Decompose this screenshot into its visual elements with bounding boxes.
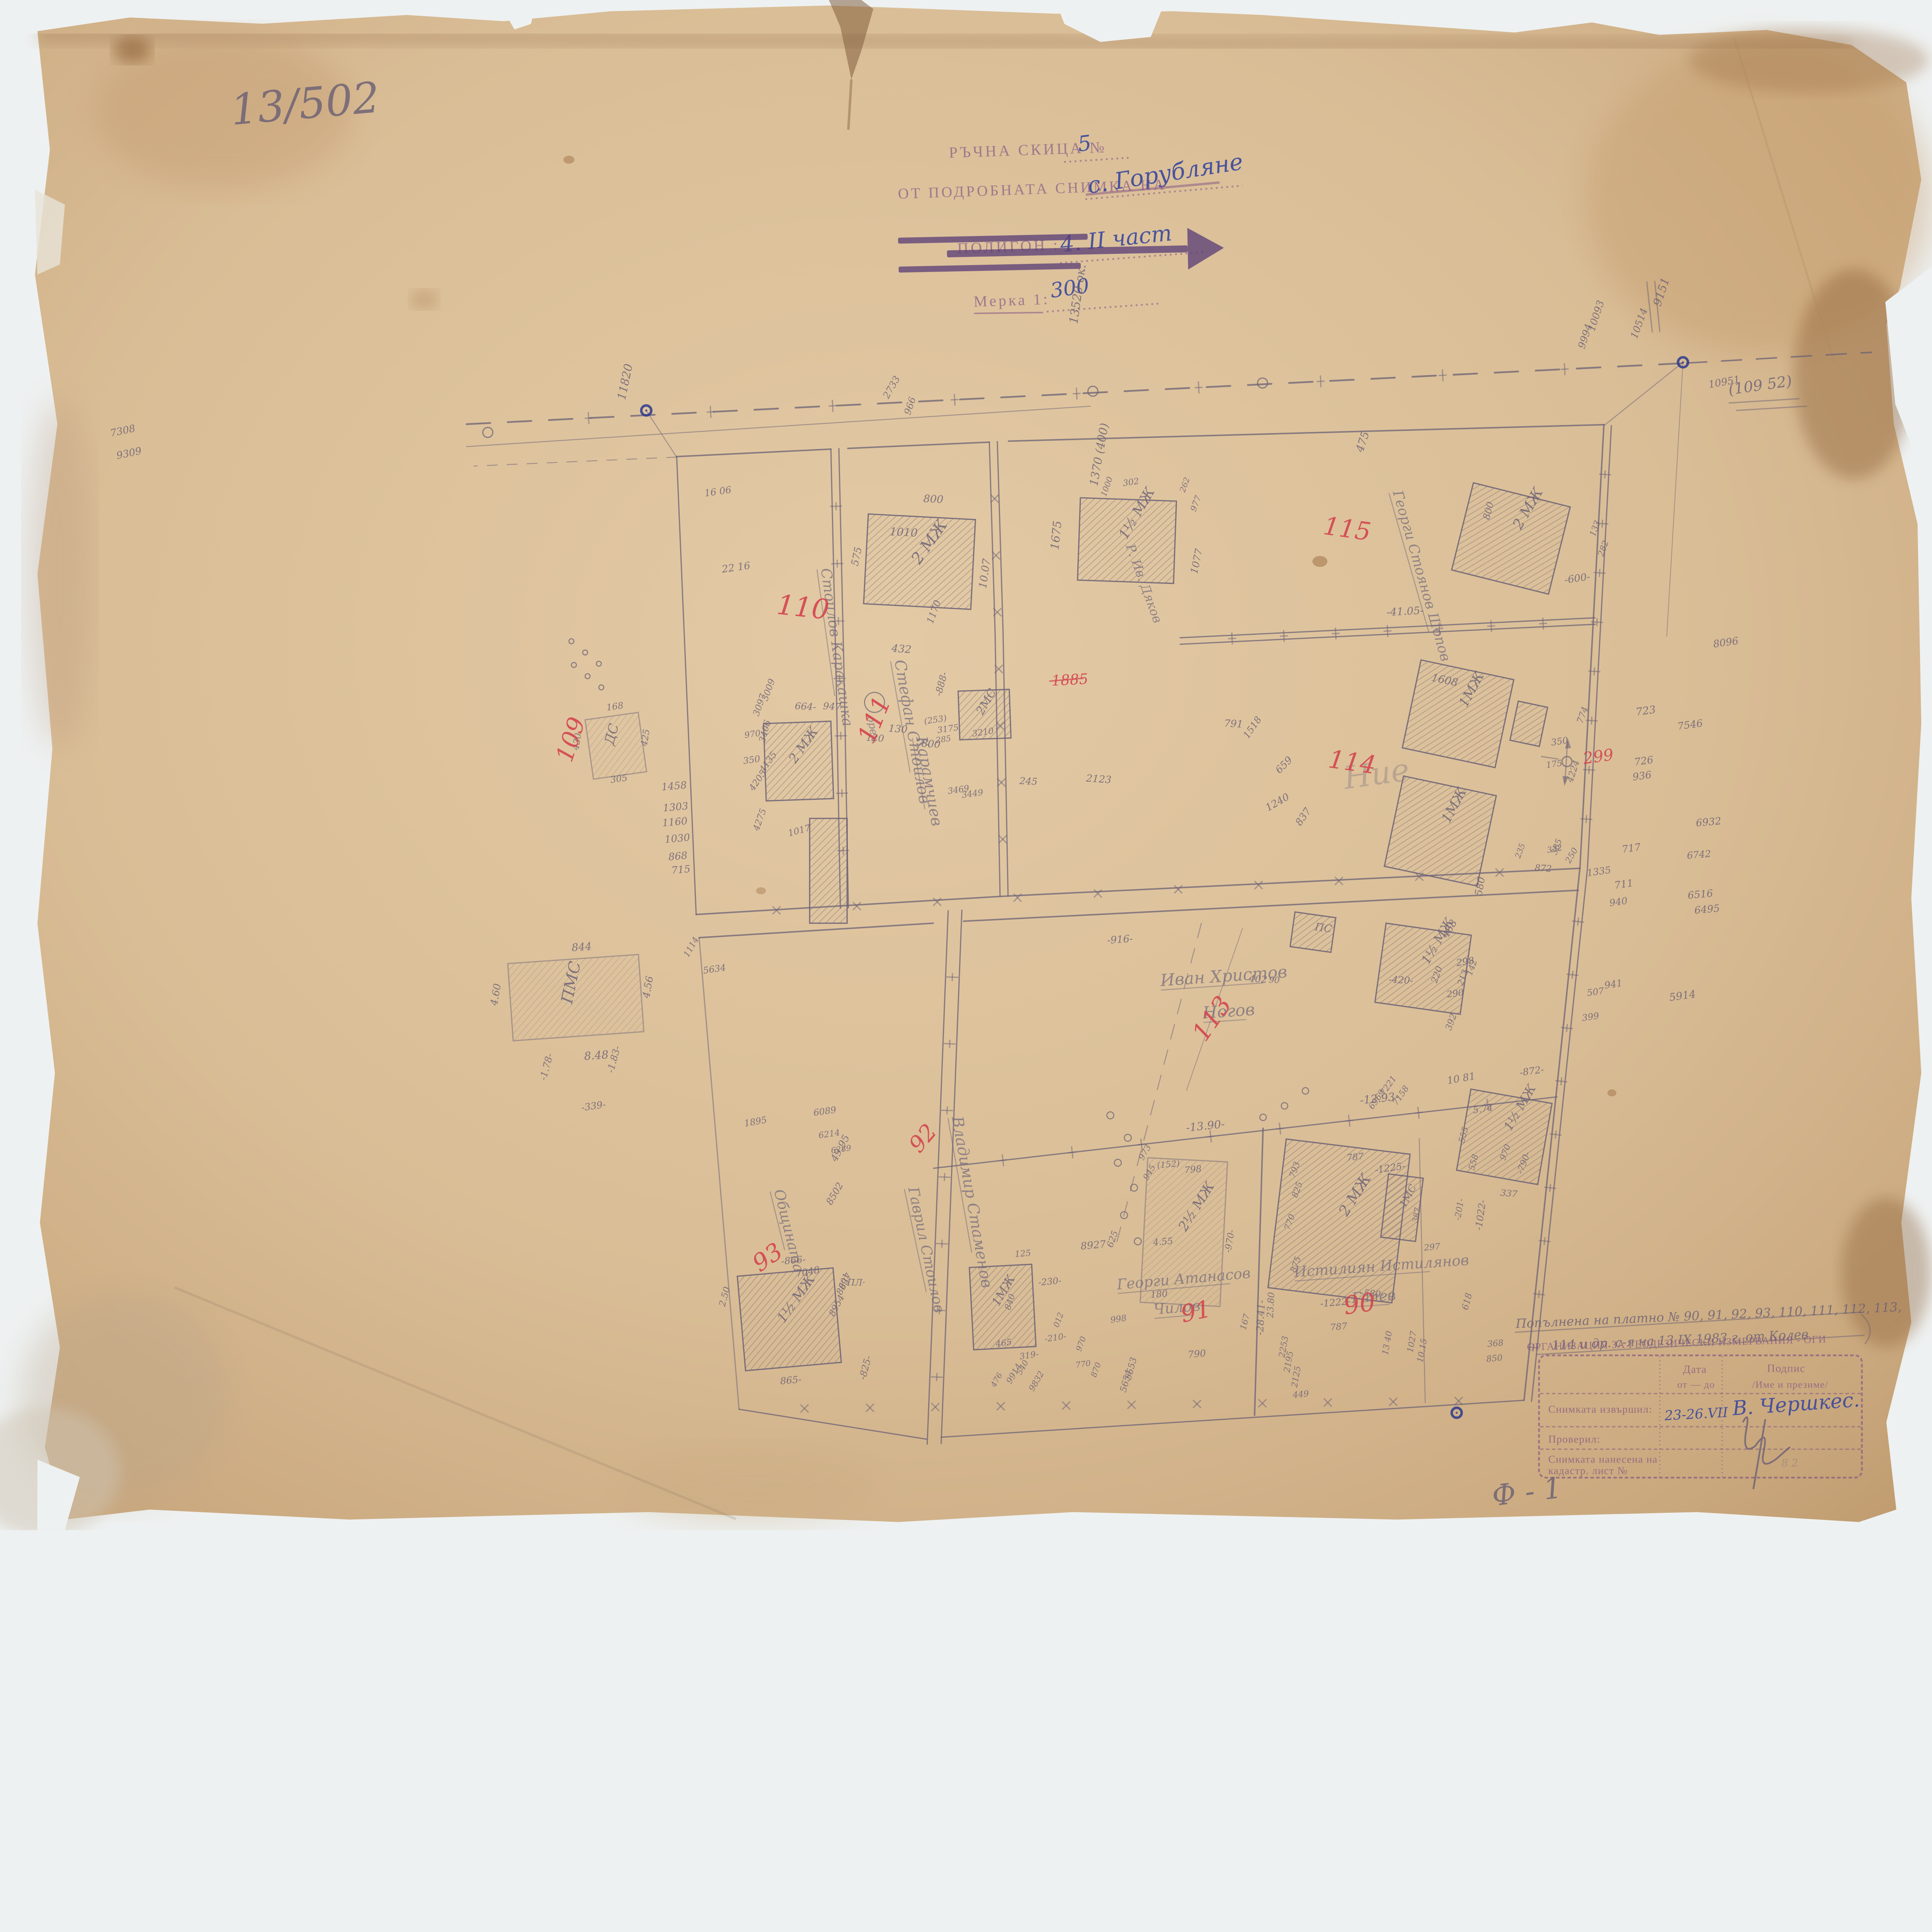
- measurement-number: 6742: [1687, 848, 1712, 861]
- measurement-number: -230-: [1038, 1276, 1062, 1288]
- row2-label: Проверил:: [1548, 1434, 1600, 1446]
- measurement-number: 1010: [889, 525, 918, 539]
- measurement-number: 715: [671, 863, 691, 876]
- col-sign-sub: /Име и презиме/: [1752, 1379, 1828, 1390]
- building: [1375, 923, 1471, 1014]
- measurement-number: 800: [923, 493, 944, 506]
- building: [1457, 1089, 1552, 1185]
- row3-value: 8 2: [1782, 1458, 1798, 1469]
- title-line4-label: Мерка 1:: [973, 290, 1050, 310]
- measurement-number: 245: [1019, 775, 1038, 787]
- stain: [619, 1445, 878, 1525]
- measurement-number: -41.05-: [1386, 605, 1424, 619]
- measurement-number: 868: [668, 850, 688, 863]
- measurement-number: 23.80: [1265, 1292, 1277, 1318]
- measurement-number: 1030: [664, 832, 690, 846]
- measurement-number: 337: [1500, 1187, 1518, 1199]
- measurement-number: 6516: [1687, 888, 1713, 901]
- stain: [1689, 27, 1929, 92]
- measurement-number: 4.55: [1152, 1236, 1173, 1248]
- measurement-number: 865-: [780, 1374, 802, 1387]
- stain: [27, 399, 92, 748]
- building-type-label: ПЛ·: [847, 1277, 865, 1288]
- measurement-number: 850: [1486, 1353, 1503, 1364]
- parcel-number: 90: [1342, 1287, 1377, 1321]
- measurement-number: 449: [1292, 1389, 1310, 1400]
- ink-survey-point-center: [645, 410, 647, 412]
- measurement-number: 297: [1423, 1242, 1440, 1253]
- measurement-number: 125: [1014, 1248, 1031, 1260]
- row1-label: Снимката извършил:: [1548, 1403, 1653, 1415]
- stain: [1313, 556, 1328, 567]
- measurement-number: 2123: [1085, 772, 1112, 786]
- col-sign-label: Подпис: [1767, 1362, 1805, 1374]
- stain: [410, 290, 438, 309]
- measurement-number: 790: [1187, 1347, 1206, 1360]
- measurement-number: (152): [1156, 1159, 1180, 1170]
- measurement-number: 791: [1224, 718, 1243, 730]
- measurement-number: 8.48: [584, 1048, 609, 1063]
- measurement-number: 787: [1330, 1321, 1348, 1333]
- measurement-number: 664-: [794, 700, 816, 713]
- building: [1402, 660, 1514, 767]
- measurement-number: 844: [571, 940, 592, 954]
- parcel-number: 110: [775, 588, 830, 626]
- measurement-number: 1458: [661, 779, 687, 793]
- measurement-number: 6495: [1694, 903, 1720, 917]
- sketch-canvas: 13/502 РЪЧНА СКИЦА № 5 ОТ ПОДРОБНАТА СНИ…: [0, 0, 1932, 1530]
- row3-label-b: кадастр. лист №: [1548, 1465, 1628, 1476]
- measurement-number: -420-: [1388, 974, 1413, 986]
- measurement-number: 6932: [1696, 815, 1722, 829]
- measurement-number: 872: [1534, 863, 1552, 874]
- measurement-number: 1160: [662, 815, 688, 829]
- measurement-number: 8927: [1080, 1238, 1107, 1252]
- measurement-number: 432: [891, 643, 912, 656]
- measurement-number: -916-: [1107, 933, 1133, 947]
- stain: [563, 156, 574, 164]
- scanned-cadastral-sketch: 13/502 РЪЧНА СКИЦА № 5 ОТ ПОДРОБНАТА СНИ…: [0, 0, 1932, 1530]
- col-date-sub: от — до: [1677, 1379, 1715, 1390]
- measurement-number: 798: [1184, 1164, 1202, 1176]
- building: [810, 818, 847, 923]
- stain: [1607, 1089, 1616, 1096]
- building-type-label: ПС: [1314, 921, 1333, 935]
- stain: [1842, 1198, 1931, 1347]
- measurement-number: 787: [1346, 1151, 1364, 1163]
- ink-survey-point-center: [1456, 1412, 1458, 1414]
- ink-survey-point-center: [1682, 361, 1684, 363]
- stain: [756, 887, 766, 894]
- row3-label-a: Снимката нанесена на: [1548, 1453, 1658, 1465]
- measurement-number: 1303: [662, 800, 689, 814]
- stain: [114, 37, 151, 63]
- col-date-label: Дата: [1683, 1364, 1707, 1376]
- building: [1384, 776, 1497, 886]
- measurement-number: 368: [1487, 1338, 1504, 1349]
